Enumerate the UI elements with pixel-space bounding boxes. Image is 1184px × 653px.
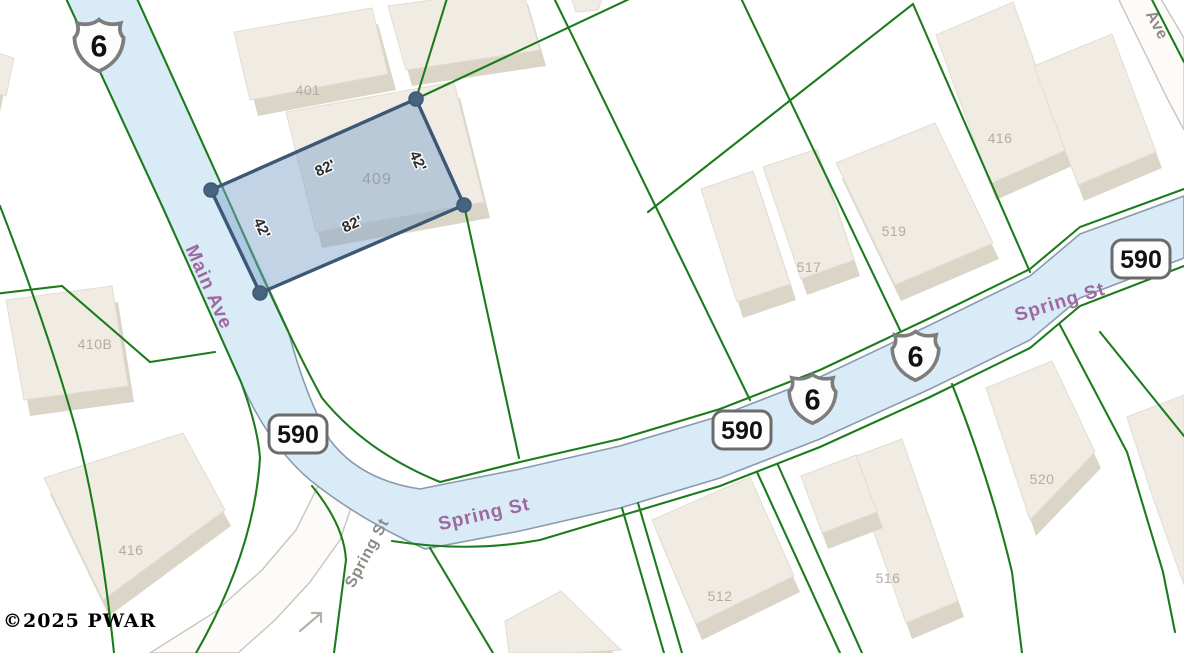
map-attribution: ©2025 PWAR	[3, 610, 156, 632]
building-label-416-ne: 416	[988, 130, 1013, 146]
building-416-sw	[44, 433, 231, 616]
building-label-401: 401	[296, 82, 321, 98]
building-517	[701, 149, 860, 318]
building-label-516: 516	[876, 570, 901, 586]
building-label-520: 520	[1030, 471, 1055, 487]
building-label-519: 519	[882, 223, 907, 239]
building-410b	[6, 286, 134, 416]
svg-text:590: 590	[721, 417, 763, 445]
route-590-shield-icon: 590	[1112, 240, 1170, 278]
svg-text:6: 6	[91, 30, 108, 64]
parcel-vertex-handle[interactable]	[409, 92, 423, 106]
route-590-shield-icon: 590	[713, 411, 771, 449]
parcel-map: 401 410B 416 517 519 416 520 512 516 82'…	[0, 0, 1184, 653]
building-512	[652, 477, 800, 640]
parcel-number-label: 409	[362, 171, 392, 188]
building-416-ne	[936, 2, 1162, 201]
building-label-416-sw: 416	[119, 542, 144, 558]
svg-text:590: 590	[1120, 246, 1162, 274]
svg-text:590: 590	[277, 421, 319, 449]
building-label-410b: 410B	[78, 336, 113, 352]
svg-text:6: 6	[907, 342, 923, 374]
building-520	[986, 361, 1101, 536]
parcel-vertex-handle[interactable]	[457, 198, 471, 212]
building-519	[836, 123, 999, 301]
building-label-517: 517	[797, 259, 822, 275]
map-canvas[interactable]: 401 410B 416 517 519 416 520 512 516 82'…	[0, 0, 1184, 653]
one-way-arrow-icon	[300, 613, 321, 631]
building-516	[801, 439, 964, 639]
route-590-shield-icon: 590	[269, 415, 327, 453]
building	[0, 52, 14, 112]
parcel-vertex-handle[interactable]	[253, 286, 267, 300]
svg-text:6: 6	[804, 385, 820, 417]
parcel-vertex-handle[interactable]	[204, 183, 218, 197]
building-label-512: 512	[708, 588, 733, 604]
street-label-spring-st-side: Spring St	[342, 516, 393, 591]
building-bottom-center	[505, 591, 627, 653]
